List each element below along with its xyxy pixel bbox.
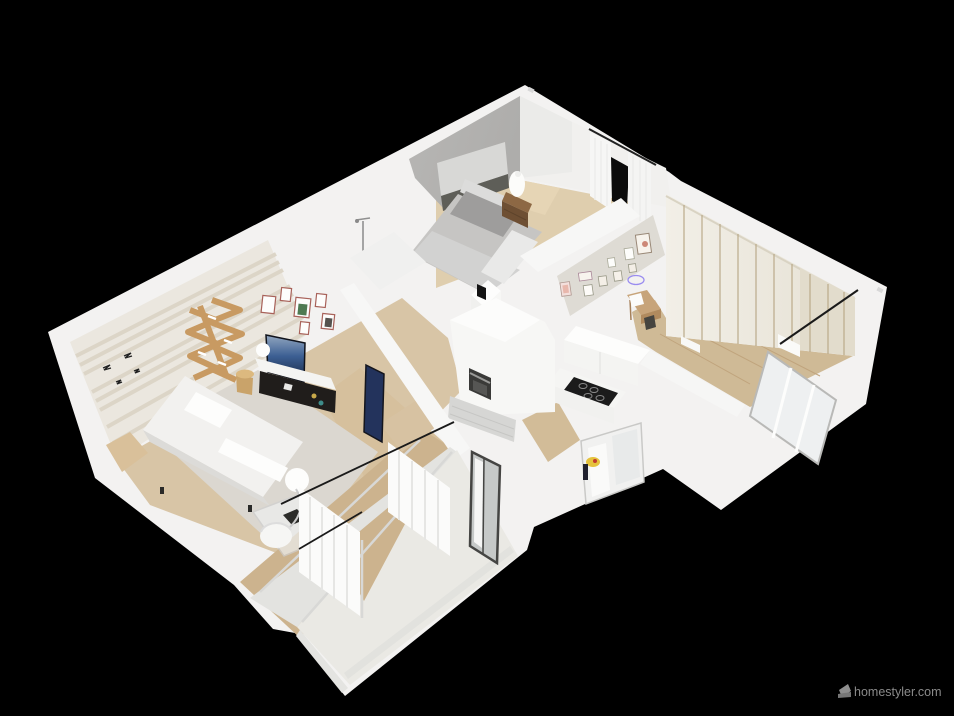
- svg-text:homestyler.com: homestyler.com: [854, 685, 942, 699]
